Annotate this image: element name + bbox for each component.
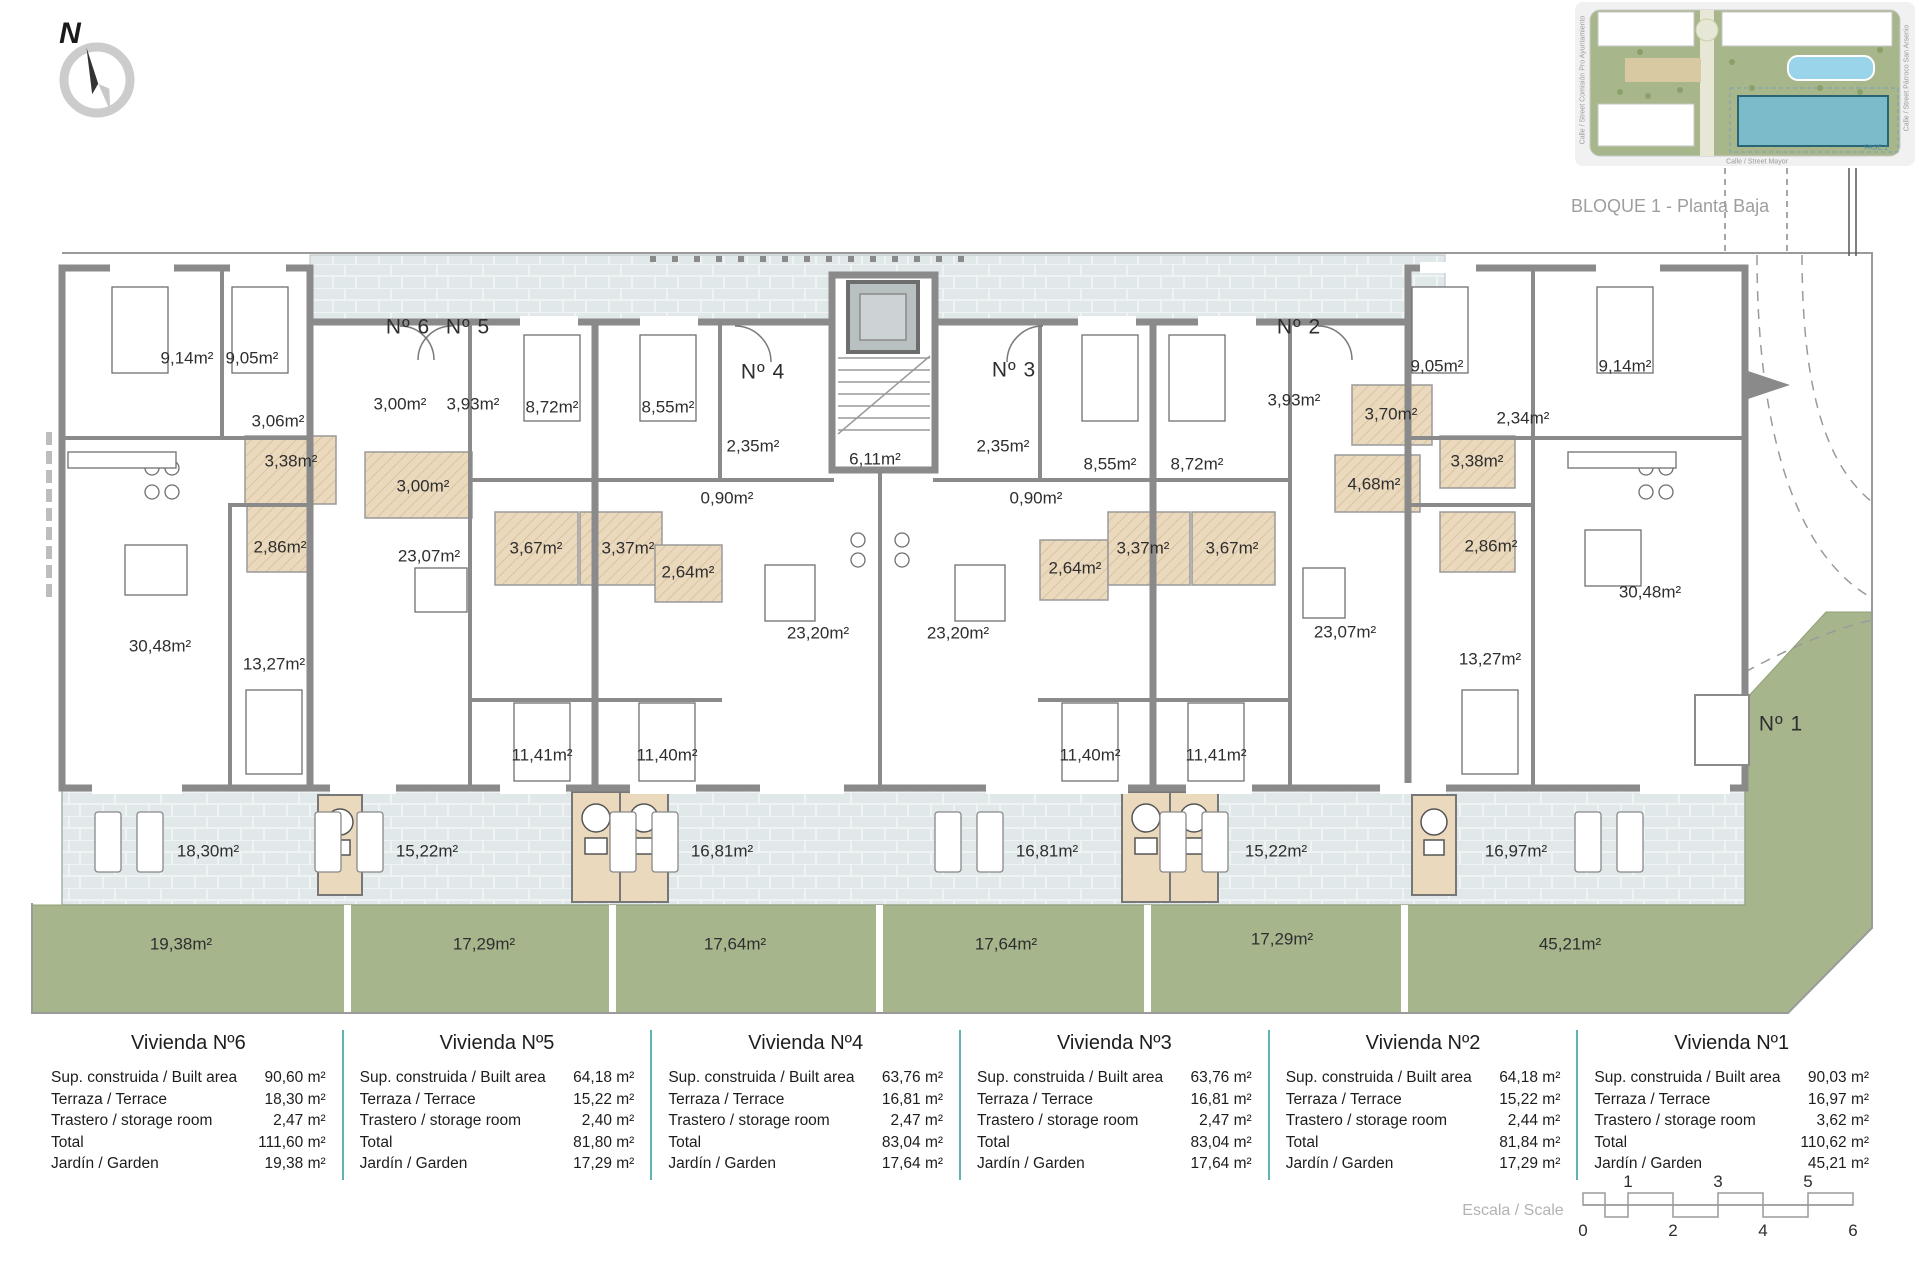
room-area-label: 23,07m² [1314, 624, 1376, 641]
room-area-label: 2,86m² [1465, 538, 1518, 555]
spec-row: Sup. construida / Built area63,76 m² [977, 1067, 1252, 1089]
entrance-label-n6: Nº 6 [386, 317, 430, 338]
spec-label: Total [51, 1132, 84, 1154]
spec-label: Sup. construida / Built area [1594, 1067, 1780, 1089]
inset-highlighted-block [1738, 96, 1888, 146]
room-area-label: 3,38m² [265, 453, 318, 470]
spec-label: Terraza / Terrace [1286, 1089, 1402, 1111]
spec-row: Total110,62 m² [1594, 1132, 1869, 1154]
room-area-label: 3,38m² [1451, 453, 1504, 470]
scale-bar [1583, 1193, 1853, 1217]
inset-deck [1625, 58, 1701, 82]
spec-value: 3,62 m² [1816, 1110, 1869, 1132]
spec-value: 90,03 m² [1808, 1067, 1869, 1089]
spec-row: Terraza / Terrace16,81 m² [977, 1089, 1252, 1111]
spec-label: Terraza / Terrace [977, 1089, 1093, 1111]
entrance-label-n5: Nº 5 [446, 317, 490, 338]
site-plan-inset [1575, 2, 1915, 166]
garden-area-label: 19,38m² [150, 936, 212, 953]
floorplan-sheet: N BLOQUE 1 - Planta Baja Calle / Street … [0, 0, 1920, 1280]
spec-value: 63,76 m² [1191, 1067, 1252, 1089]
room-area-label: 8,55m² [1084, 456, 1137, 473]
unit-spec-table: Vivienda Nº6 Sup. construida / Built are… [35, 1030, 1885, 1180]
room-area-label: 11,41m² [511, 747, 572, 764]
spec-row: Jardín / Garden45,21 m² [1594, 1153, 1869, 1175]
unit-column-n6: Vivienda Nº6 Sup. construida / Built are… [35, 1030, 342, 1180]
stair-core [832, 275, 935, 470]
spec-value: 17,64 m² [1191, 1153, 1252, 1175]
terrace-area-label: 16,81m² [1016, 843, 1078, 860]
spec-row: Sup. construida / Built area63,76 m² [668, 1067, 943, 1089]
spec-row: Trastero / storage room2,40 m² [360, 1110, 635, 1132]
room-area-label: 3,37m² [602, 540, 655, 557]
driveway-curves [1745, 255, 1872, 672]
room-area-label: 8,55m² [642, 399, 695, 416]
spec-row: Sup. construida / Built area90,60 m² [51, 1067, 326, 1089]
spec-value: 90,60 m² [265, 1067, 326, 1089]
spec-value: 2,44 m² [1508, 1110, 1561, 1132]
room-area-label: 3,70m² [1365, 406, 1418, 423]
terrace-area-label: 16,81m² [691, 843, 753, 860]
room-area-label: 3,00m² [374, 396, 427, 413]
spec-value: 16,97 m² [1808, 1089, 1869, 1111]
room-area-label: 3,67m² [1206, 540, 1259, 557]
room-area-label: 6,11m² [849, 451, 901, 468]
scale-tick: 4 [1758, 1221, 1767, 1241]
spec-row: Total83,04 m² [668, 1132, 943, 1154]
spec-row: Jardín / Garden17,64 m² [668, 1153, 943, 1175]
spec-label: Jardín / Garden [360, 1153, 468, 1175]
room-area-label: 3,93m² [1268, 392, 1321, 409]
inset-building-nw [1598, 12, 1694, 46]
spec-row: Jardín / Garden19,38 m² [51, 1153, 326, 1175]
spec-label: Trastero / storage room [51, 1110, 212, 1132]
spec-value: 17,64 m² [882, 1153, 943, 1175]
room-area-label: 11,40m² [636, 747, 697, 764]
garden-area-label: 17,29m² [1251, 931, 1313, 948]
inset-phase-label: FASE 1 [1864, 145, 1888, 152]
scale-tick: 2 [1668, 1221, 1677, 1241]
spec-label: Sup. construida / Built area [668, 1067, 854, 1089]
spec-label: Jardín / Garden [1286, 1153, 1394, 1175]
garden-area-label: 17,64m² [975, 936, 1037, 953]
scale-label: Escala / Scale [1448, 1202, 1578, 1220]
inset-pool [1788, 56, 1874, 80]
unit-column-n5: Vivienda Nº5 Sup. construida / Built are… [342, 1030, 651, 1180]
spec-value: 2,47 m² [1199, 1110, 1252, 1132]
unit-header: Vivienda Nº5 [360, 1032, 635, 1055]
garden-area-label: 17,64m² [704, 936, 766, 953]
spec-value: 83,04 m² [1191, 1132, 1252, 1154]
spec-value: 81,80 m² [573, 1132, 634, 1154]
spec-label: Trastero / storage room [977, 1110, 1138, 1132]
entrance-label-n3: Nº 3 [992, 360, 1036, 381]
spec-label: Trastero / storage room [360, 1110, 521, 1132]
spec-row: Trastero / storage room2,47 m² [977, 1110, 1252, 1132]
terrace-area-label: 15,22m² [1245, 843, 1307, 860]
room-area-label: 9,14m² [161, 350, 214, 367]
terrace-area-label: 18,30m² [177, 843, 239, 860]
sheet-title: BLOQUE 1 - Planta Baja [1571, 196, 1769, 217]
spec-label: Jardín / Garden [1594, 1153, 1702, 1175]
scale-tick: 6 [1848, 1221, 1857, 1241]
spec-row: Sup. construida / Built area90,03 m² [1594, 1067, 1869, 1089]
spec-label: Jardín / Garden [668, 1153, 776, 1175]
garden-area-label: 45,21m² [1539, 936, 1601, 953]
room-area-label: 2,64m² [662, 564, 715, 581]
spec-row: Total111,60 m² [51, 1132, 326, 1154]
garden-area-label: 17,29m² [453, 936, 515, 953]
spec-label: Terraza / Terrace [51, 1089, 167, 1111]
spec-value: 45,21 m² [1808, 1153, 1869, 1175]
unit-header: Vivienda Nº3 [977, 1032, 1252, 1055]
room-area-label: 2,35m² [727, 438, 780, 455]
unit-column-n3: Vivienda Nº3 Sup. construida / Built are… [959, 1030, 1268, 1180]
room-area-label: 30,48m² [1619, 584, 1681, 601]
spec-row: Trastero / storage room2,47 m² [51, 1110, 326, 1132]
spec-value: 2,47 m² [890, 1110, 943, 1132]
spec-value: 19,38 m² [265, 1153, 326, 1175]
terrace-area-label: 15,22m² [396, 843, 458, 860]
spec-row: Total81,80 m² [360, 1132, 635, 1154]
spec-value: 17,29 m² [573, 1153, 634, 1175]
inset-building-sw [1598, 104, 1694, 146]
room-area-label: 2,64m² [1049, 560, 1102, 577]
spec-label: Total [1594, 1132, 1627, 1154]
room-area-label: 9,05m² [1411, 358, 1464, 375]
spec-label: Total [977, 1132, 1010, 1154]
room-area-label: 9,05m² [226, 350, 279, 367]
spec-label: Trastero / storage room [668, 1110, 829, 1132]
spec-value: 64,18 m² [1499, 1067, 1560, 1089]
spec-value: 81,84 m² [1499, 1132, 1560, 1154]
room-area-label: 13,27m² [243, 656, 305, 673]
west-louver-strip [46, 432, 52, 597]
spec-value: 17,29 m² [1499, 1153, 1560, 1175]
room-area-label: 3,06m² [252, 413, 305, 430]
scale-tick: 3 [1713, 1172, 1722, 1192]
unit-header: Vivienda Nº4 [668, 1032, 943, 1055]
room-area-label: 3,37m² [1117, 540, 1170, 557]
spec-label: Terraza / Terrace [360, 1089, 476, 1111]
unit-column-n1: Vivienda Nº1 Sup. construida / Built are… [1576, 1030, 1885, 1180]
room-area-label: 0,90m² [701, 490, 754, 507]
room-area-label: 23,20m² [927, 625, 989, 642]
inset-building-ne [1722, 12, 1892, 46]
spec-row: Terraza / Terrace16,81 m² [668, 1089, 943, 1111]
room-area-label: 3,67m² [510, 540, 563, 557]
unit-column-n4: Vivienda Nº4 Sup. construida / Built are… [650, 1030, 959, 1180]
room-area-label: 2,86m² [254, 539, 307, 556]
spec-value: 2,47 m² [273, 1110, 326, 1132]
spec-row: Trastero / storage room2,47 m² [668, 1110, 943, 1132]
spec-value: 16,81 m² [882, 1089, 943, 1111]
unit-header: Vivienda Nº1 [1594, 1032, 1869, 1055]
unit-column-n2: Vivienda Nº2 Sup. construida / Built are… [1268, 1030, 1577, 1180]
spec-row: Jardín / Garden17,29 m² [360, 1153, 635, 1175]
spec-row: Sup. construida / Built area64,18 m² [1286, 1067, 1561, 1089]
room-area-label: 3,93m² [447, 396, 500, 413]
spec-row: Terraza / Terrace16,97 m² [1594, 1089, 1869, 1111]
unit-header: Vivienda Nº2 [1286, 1032, 1561, 1055]
spec-label: Trastero / storage room [1594, 1110, 1755, 1132]
room-area-label: 3,00m² [397, 478, 450, 495]
room-area-label: 2,34m² [1497, 410, 1550, 427]
spec-label: Jardín / Garden [51, 1153, 159, 1175]
spec-label: Trastero / storage room [1286, 1110, 1447, 1132]
spec-value: 15,22 m² [1499, 1089, 1560, 1111]
north-label: N [59, 19, 81, 49]
scale-tick: 1 [1623, 1172, 1632, 1192]
spec-value: 15,22 m² [573, 1089, 634, 1111]
room-area-label: 11,41m² [1185, 747, 1246, 764]
spec-label: Sup. construida / Built area [360, 1067, 546, 1089]
inset-street-bottom-label: Calle / Street Mayor [1726, 159, 1788, 166]
spec-label: Jardín / Garden [977, 1153, 1085, 1175]
spec-row: Trastero / storage room3,62 m² [1594, 1110, 1869, 1132]
spec-row: Terraza / Terrace15,22 m² [1286, 1089, 1561, 1111]
spec-label: Sup. construida / Built area [51, 1067, 237, 1089]
spec-row: Total81,84 m² [1286, 1132, 1561, 1154]
spec-value: 64,18 m² [573, 1067, 634, 1089]
spec-row: Total83,04 m² [977, 1132, 1252, 1154]
room-area-label: 8,72m² [526, 399, 579, 416]
spec-value: 111,60 m² [258, 1132, 326, 1154]
inset-street-right-label: Calle / Street Párroco San Arsenio [1904, 25, 1911, 132]
spec-label: Total [1286, 1132, 1319, 1154]
room-area-label: 11,40m² [1059, 747, 1120, 764]
spec-value: 18,30 m² [265, 1089, 326, 1111]
spec-value: 110,62 m² [1800, 1132, 1869, 1154]
inset-street-left-label: Calle / Street Comisión Pro Ayuntamiento [1580, 16, 1587, 145]
spec-row: Trastero / storage room2,44 m² [1286, 1110, 1561, 1132]
spec-row: Jardín / Garden17,29 m² [1286, 1153, 1561, 1175]
room-area-label: 9,14m² [1599, 358, 1652, 375]
entrance-label-n2: Nº 2 [1277, 317, 1321, 338]
spec-value: 2,40 m² [582, 1110, 635, 1132]
unit-header: Vivienda Nº6 [51, 1032, 326, 1055]
terrace-area-label: 16,97m² [1485, 843, 1547, 860]
room-area-label: 2,35m² [977, 438, 1030, 455]
scale-tick: 0 [1578, 1221, 1587, 1241]
spec-row: Terraza / Terrace15,22 m² [360, 1089, 635, 1111]
spec-value: 16,81 m² [1191, 1089, 1252, 1111]
room-area-label: 8,72m² [1171, 456, 1224, 473]
entrance-label-n4: Nº 4 [741, 362, 785, 383]
room-area-label: 23,20m² [787, 625, 849, 642]
spec-label: Total [668, 1132, 701, 1154]
scale-tick: 5 [1803, 1172, 1812, 1192]
spec-label: Sup. construida / Built area [977, 1067, 1163, 1089]
spec-row: Sup. construida / Built area64,18 m² [360, 1067, 635, 1089]
room-area-label: 0,90m² [1010, 490, 1063, 507]
room-area-label: 23,07m² [398, 548, 460, 565]
spec-label: Terraza / Terrace [1594, 1089, 1710, 1111]
spec-value: 83,04 m² [882, 1132, 943, 1154]
room-area-label: 30,48m² [129, 638, 191, 655]
spec-label: Total [360, 1132, 393, 1154]
pergola-fence-dots [650, 256, 964, 262]
room-area-label: 13,27m² [1459, 651, 1521, 668]
room-area-label: 4,68m² [1348, 476, 1401, 493]
spec-label: Terraza / Terrace [668, 1089, 784, 1111]
entrance-label-n1: Nº 1 [1759, 714, 1803, 735]
compass-icon [64, 45, 130, 115]
spec-value: 63,76 m² [882, 1067, 943, 1089]
spec-row: Terraza / Terrace18,30 m² [51, 1089, 326, 1111]
spec-label: Sup. construida / Built area [1286, 1067, 1472, 1089]
spec-row: Jardín / Garden17,64 m² [977, 1153, 1252, 1175]
